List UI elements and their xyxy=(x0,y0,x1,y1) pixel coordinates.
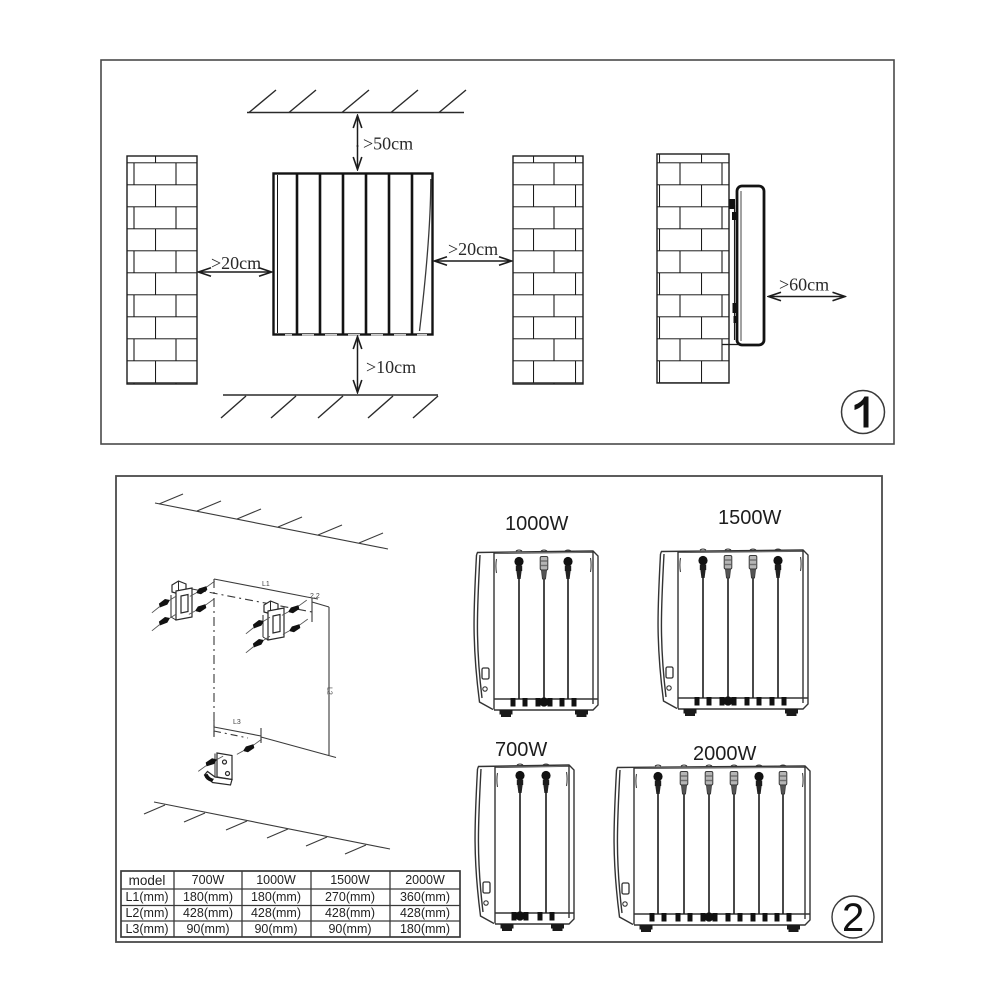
svg-text:>20cm: >20cm xyxy=(211,253,261,273)
svg-text:428(mm): 428(mm) xyxy=(251,906,301,920)
svg-text:L3: L3 xyxy=(233,719,241,726)
svg-text:1500W: 1500W xyxy=(330,873,370,887)
svg-text:180(mm): 180(mm) xyxy=(251,890,301,904)
svg-text:2000W: 2000W xyxy=(405,873,445,887)
svg-text:L2(mm): L2(mm) xyxy=(125,906,168,920)
svg-text:1500W: 1500W xyxy=(718,507,781,529)
svg-text:>10cm: >10cm xyxy=(366,357,416,377)
svg-text:700W: 700W xyxy=(192,873,225,887)
svg-text:700W: 700W xyxy=(495,739,547,761)
svg-text:>60cm: >60cm xyxy=(779,275,829,295)
svg-text:L2: L2 xyxy=(326,687,333,695)
svg-text:1000W: 1000W xyxy=(505,513,568,535)
svg-text:360(mm): 360(mm) xyxy=(400,890,450,904)
svg-text:90(mm): 90(mm) xyxy=(186,922,229,936)
svg-text:180(mm): 180(mm) xyxy=(183,890,233,904)
svg-text:428(mm): 428(mm) xyxy=(400,906,450,920)
svg-text:90(mm): 90(mm) xyxy=(328,922,371,936)
svg-text:>20cm: >20cm xyxy=(448,239,498,259)
svg-text:2.2: 2.2 xyxy=(310,593,320,600)
svg-text:2000W: 2000W xyxy=(693,743,756,765)
svg-text:model: model xyxy=(129,873,166,888)
svg-text:L1: L1 xyxy=(262,581,270,588)
svg-text:2: 2 xyxy=(842,896,864,940)
svg-text:>50cm: >50cm xyxy=(363,134,413,154)
svg-text:270(mm): 270(mm) xyxy=(325,890,375,904)
svg-text:1000W: 1000W xyxy=(256,873,296,887)
svg-text:180(mm): 180(mm) xyxy=(400,922,450,936)
svg-text:428(mm): 428(mm) xyxy=(325,906,375,920)
svg-text:428(mm): 428(mm) xyxy=(183,906,233,920)
svg-text:L1(mm): L1(mm) xyxy=(125,890,168,904)
svg-text:L3(mm): L3(mm) xyxy=(125,922,168,936)
svg-text:90(mm): 90(mm) xyxy=(254,922,297,936)
